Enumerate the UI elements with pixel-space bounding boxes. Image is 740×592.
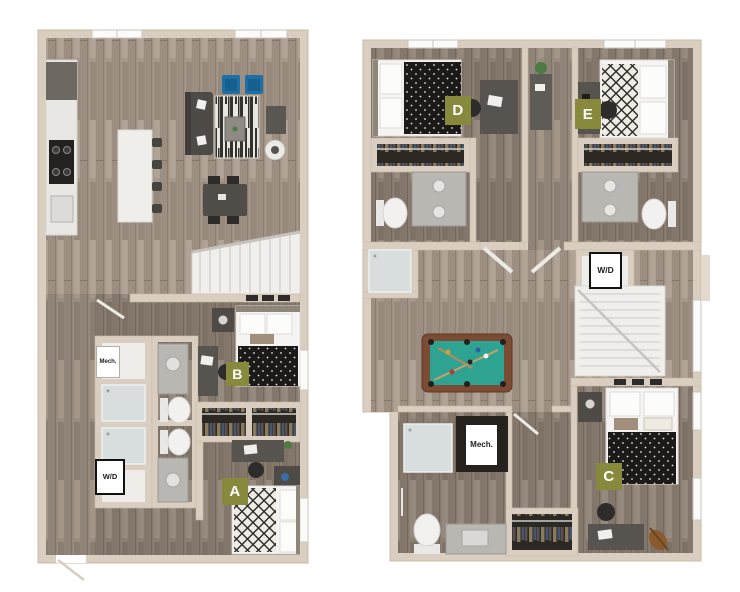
sink xyxy=(166,473,180,487)
refrigerator xyxy=(46,62,77,100)
pillow xyxy=(380,64,402,94)
bar-stool xyxy=(152,204,162,213)
window xyxy=(693,300,701,372)
hallway-floor xyxy=(46,294,95,555)
dining-chair xyxy=(208,176,220,184)
desk-chair xyxy=(599,101,617,119)
patterned-pillow xyxy=(644,418,672,430)
window-blinds xyxy=(262,295,274,301)
pillow xyxy=(280,490,298,520)
bar-stool xyxy=(152,182,162,191)
desk xyxy=(198,346,218,396)
closet-d xyxy=(377,144,464,166)
pillow xyxy=(610,392,640,416)
toilet-tank xyxy=(160,430,168,454)
sink xyxy=(433,206,445,218)
sink xyxy=(166,357,180,371)
console-table xyxy=(530,74,552,130)
toilet xyxy=(414,514,440,546)
pillow xyxy=(280,522,298,552)
toilet xyxy=(642,199,666,229)
lamp xyxy=(218,315,228,325)
sink xyxy=(462,530,488,546)
pool-table xyxy=(422,334,512,392)
desk-chair xyxy=(248,462,264,478)
mech-label-floor1: Mech. xyxy=(96,346,120,378)
sink xyxy=(604,180,616,192)
pillow xyxy=(640,102,666,134)
window xyxy=(300,350,308,390)
plant xyxy=(535,62,547,74)
closet xyxy=(252,408,296,436)
stove xyxy=(49,140,74,184)
pillow xyxy=(240,314,265,334)
wall-bump xyxy=(701,255,710,301)
sink xyxy=(433,180,445,192)
window-blinds xyxy=(246,295,258,301)
window xyxy=(693,478,701,520)
closet-c xyxy=(512,514,572,550)
throw-pillow xyxy=(196,99,207,110)
room-badge-b: B xyxy=(226,362,249,386)
floor-plan-canvas: B A D E C Mech. W/D W/D Mech. xyxy=(0,0,740,592)
accent-pillow xyxy=(250,334,274,344)
kitchen-sink xyxy=(51,196,73,222)
desk xyxy=(480,80,518,134)
washer-dryer-label-floor1: W/D xyxy=(95,459,125,495)
window-blinds xyxy=(650,379,662,385)
closet xyxy=(202,408,246,436)
sink xyxy=(604,204,616,216)
room-badge-a: A xyxy=(222,478,248,505)
window xyxy=(300,498,308,542)
window-blinds xyxy=(614,379,626,385)
globe xyxy=(281,473,289,481)
pillow xyxy=(380,98,402,128)
bar-stool xyxy=(152,160,162,169)
bathroom-1 xyxy=(158,342,192,423)
closet-e xyxy=(584,144,672,166)
first-floor-plan xyxy=(38,30,308,580)
window-blinds xyxy=(632,379,644,385)
room-badge-c: C xyxy=(596,463,622,490)
room-badge-d: D xyxy=(445,96,471,125)
dining-chair xyxy=(227,176,239,184)
coffee-table xyxy=(225,117,245,141)
toilet xyxy=(383,198,407,228)
toilet xyxy=(168,429,190,455)
duvet xyxy=(602,64,638,136)
second-floor-plan xyxy=(363,40,710,561)
desk xyxy=(232,440,284,462)
room-badge-e: E xyxy=(575,99,601,129)
washer-dryer-label-floor2: W/D xyxy=(589,252,622,289)
dining-chair xyxy=(208,216,220,224)
window-blinds xyxy=(278,295,290,301)
desk xyxy=(588,524,644,550)
shower xyxy=(404,424,452,472)
kitchen-counter xyxy=(46,60,77,235)
lamp xyxy=(585,399,595,409)
pillow xyxy=(640,66,666,98)
floor-plan-render xyxy=(0,0,740,592)
desk-chair xyxy=(597,503,615,521)
accent-pillow xyxy=(614,418,638,430)
toilet-tank xyxy=(668,201,676,227)
plant xyxy=(284,441,292,449)
bathroom-2 xyxy=(158,426,192,502)
mech-label-floor2: Mech. xyxy=(465,424,498,466)
pillow xyxy=(267,314,292,334)
throw-pillow xyxy=(196,135,206,145)
console-table xyxy=(265,106,286,160)
bar-stool xyxy=(152,138,162,147)
toilet-tank xyxy=(160,398,168,422)
pillow xyxy=(644,392,674,416)
toilet xyxy=(168,397,190,423)
staircase xyxy=(575,286,665,376)
dining-chair xyxy=(227,216,239,224)
sofa xyxy=(185,92,213,155)
window xyxy=(693,392,701,430)
